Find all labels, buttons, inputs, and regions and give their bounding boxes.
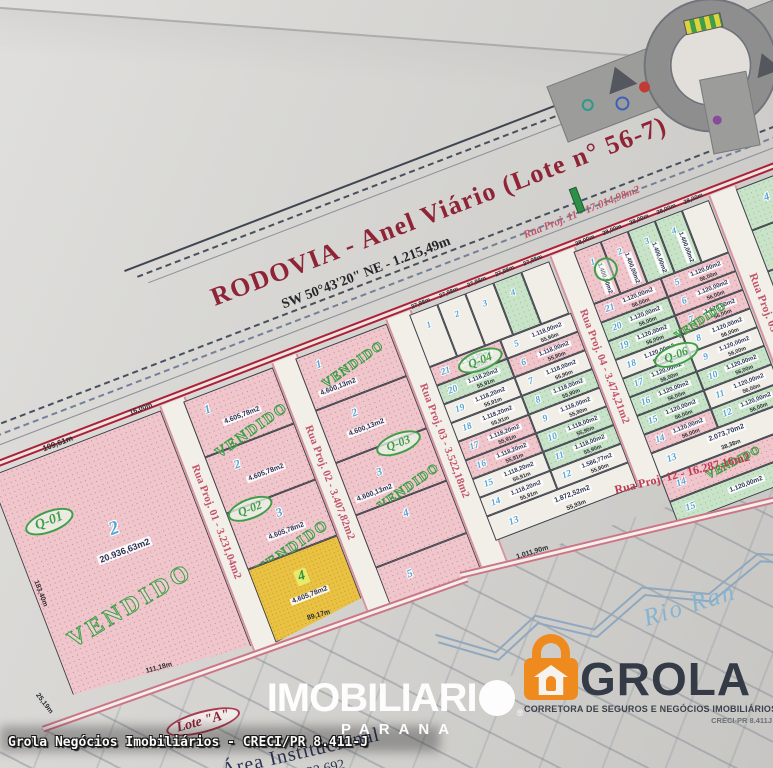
imobiliario-wordmark: IMOBILIARI: [267, 678, 477, 718]
disc-notch: [503, 676, 519, 692]
imobiliario-watermark: IMOBILIARI ® PARANA: [250, 678, 540, 738]
parana-label: PARANA: [250, 721, 540, 738]
grola-creci: CRECI-PR 8.411J: [524, 716, 772, 725]
registered-mark: ®: [517, 708, 524, 718]
plat-photo: RODOVIA - Anel Viário (Lote n° 56-7)SW 5…: [0, 0, 773, 768]
imobiliario-disc-icon: [479, 680, 515, 716]
keyhole-icon: [546, 676, 556, 691]
grola-wordmark: GROLA: [580, 659, 751, 700]
grola-subtitle: CORRETORA DE SEGUROS E NEGÓCIOS IMOBILIÁ…: [524, 704, 772, 714]
dimension-label: 25,19m: [34, 692, 54, 715]
padlock-house-icon: [524, 634, 578, 700]
grola-logo: GROLA CORRETORA DE SEGUROS E NEGÓCIOS IM…: [524, 634, 772, 725]
